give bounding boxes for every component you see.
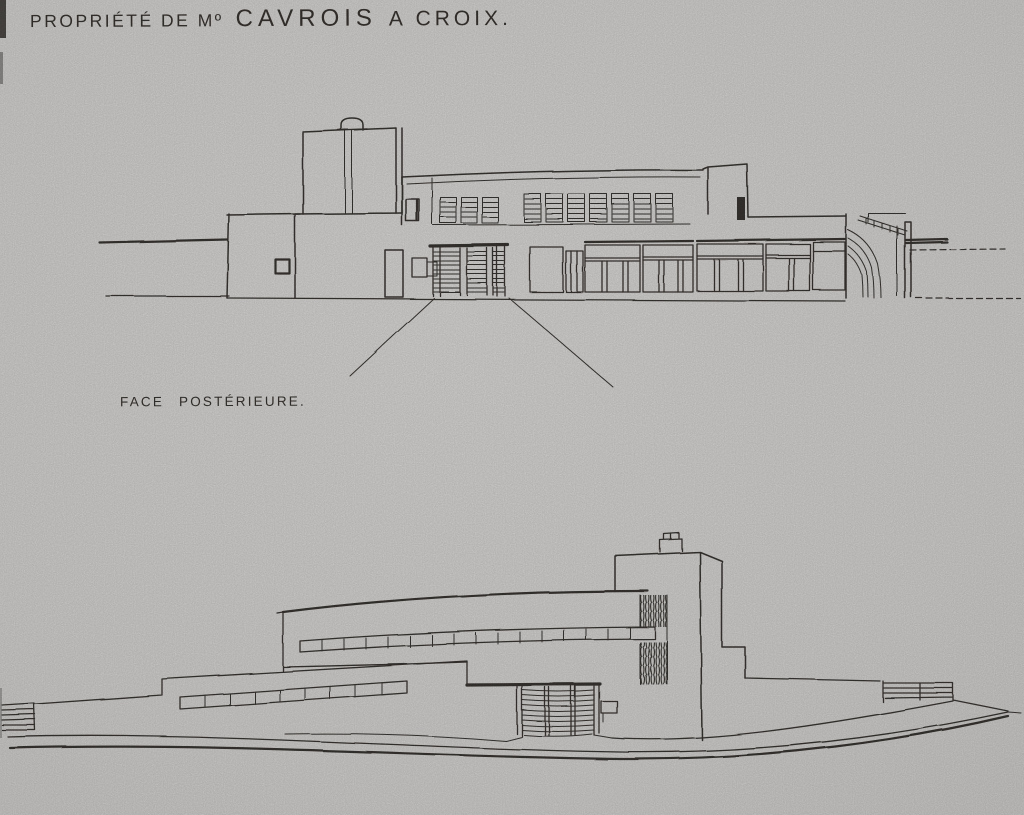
scanned-drawing-page: PROPRIÉTÉ DE Mº CAVROIS A CROIX. FACE PO… [0, 0, 1024, 815]
paper-grain [0, 0, 1024, 815]
drawing-canvas [0, 0, 1024, 815]
